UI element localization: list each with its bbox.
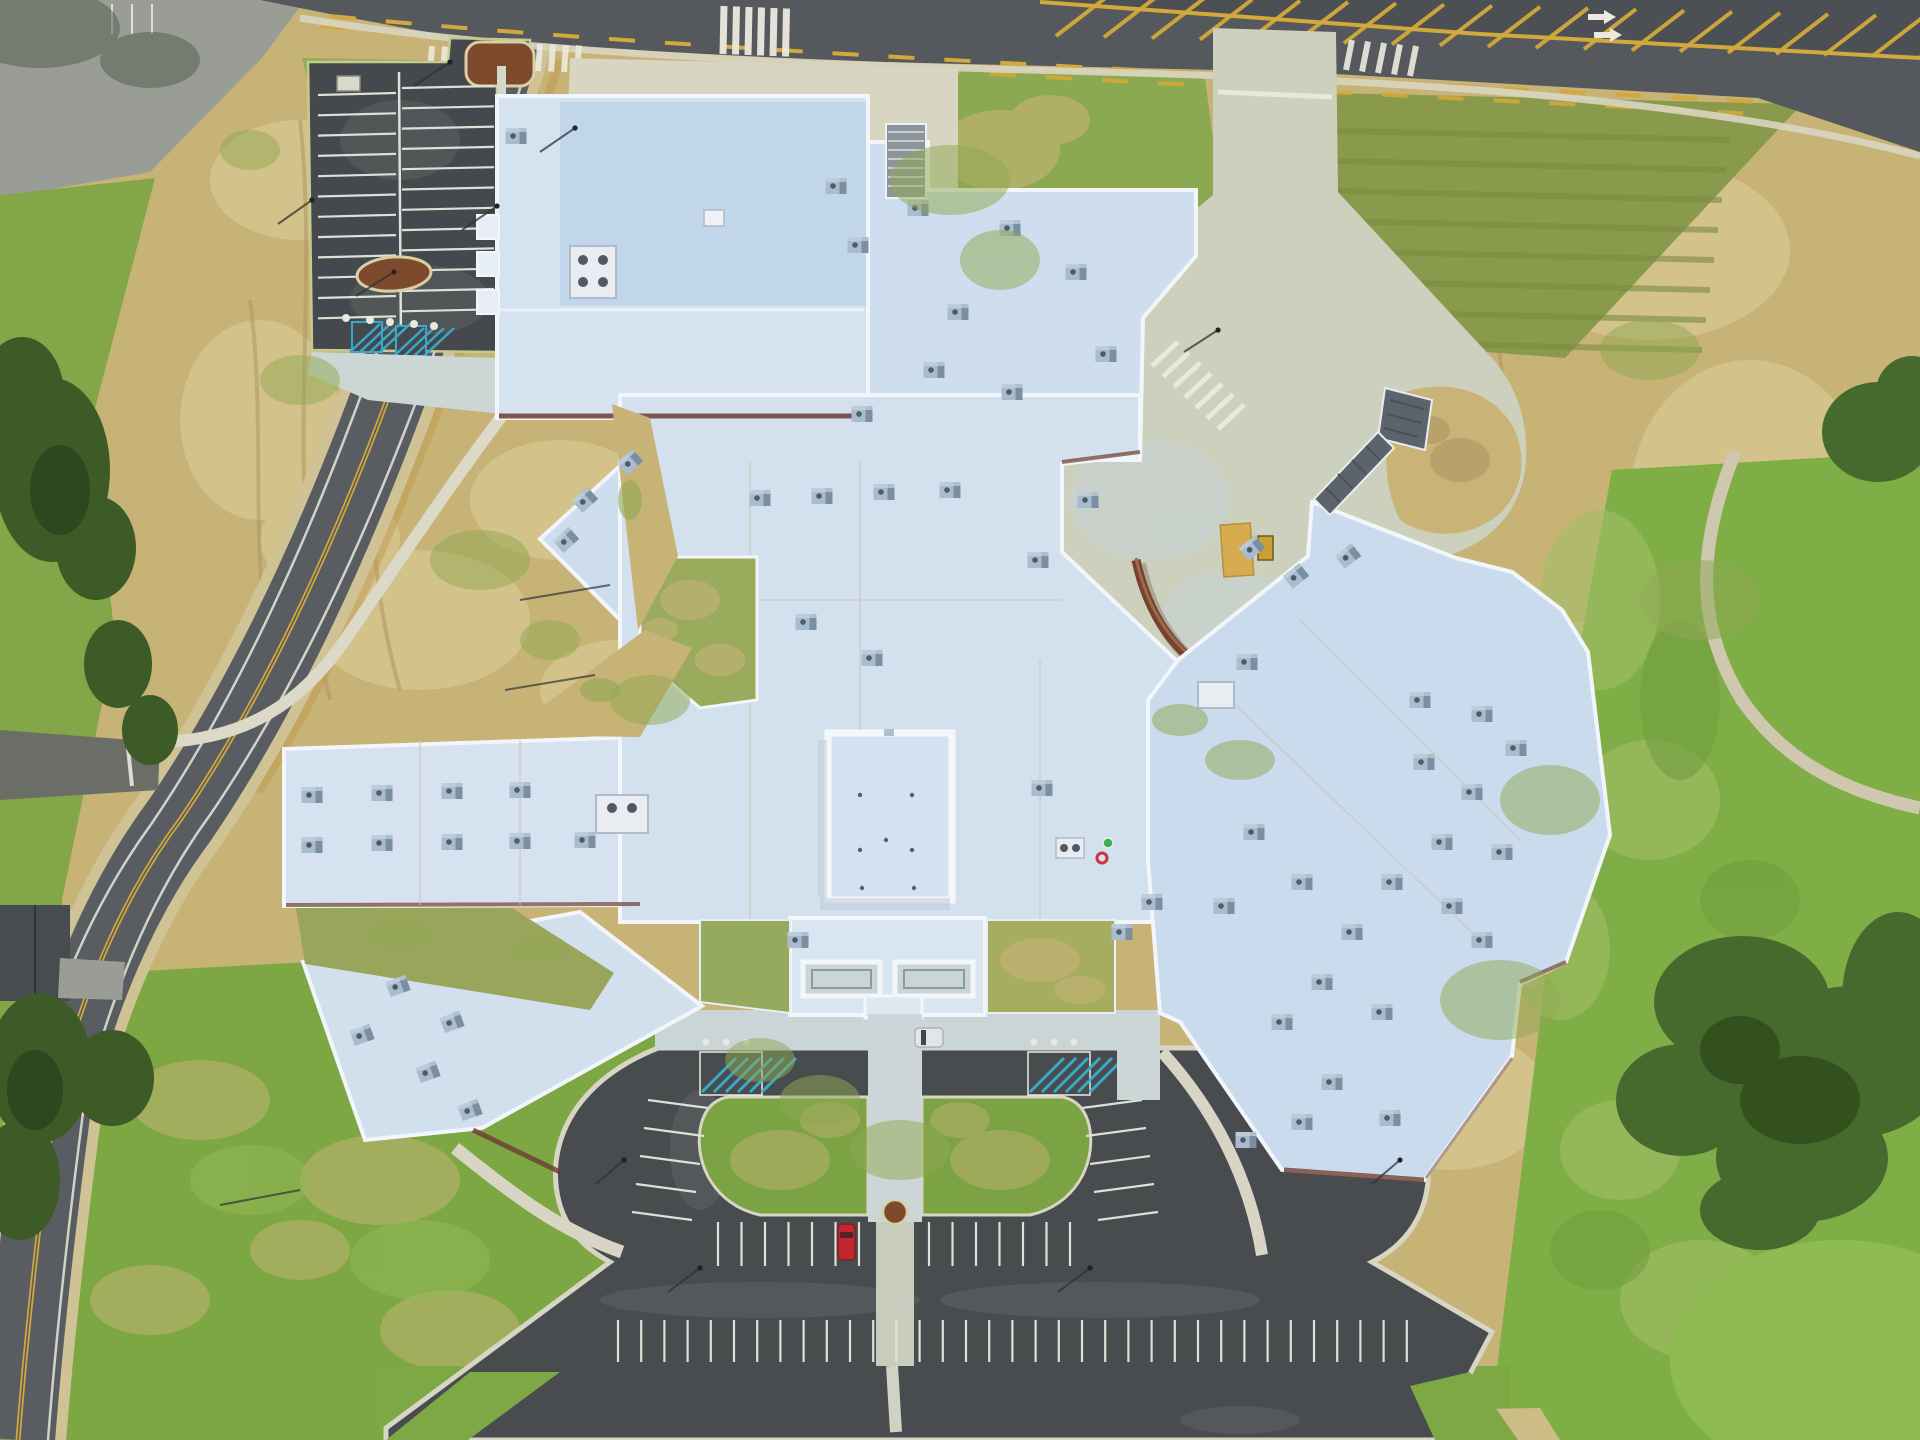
rtu-large-gym [570, 246, 616, 298]
car-white-windshield [921, 1030, 926, 1045]
aerial-photo-canvas [0, 0, 1920, 1440]
rtu-gym-cube [704, 210, 724, 226]
car-red [838, 1224, 855, 1260]
sign-board-dirt [337, 76, 360, 91]
raised-square-shadow-south [820, 898, 950, 910]
house-driveway [58, 958, 125, 1000]
car-white [915, 1028, 943, 1047]
west-bar-south-wall [286, 904, 640, 905]
roof-marker-green [1103, 838, 1113, 848]
entrance-canopy-frame-1 [803, 962, 880, 996]
rtu-west-bar [596, 795, 648, 833]
loop-east-walk-pocket [1117, 1013, 1160, 1100]
wing-west-bar [284, 737, 640, 906]
center-walkway-tail [892, 1366, 896, 1432]
raised-square-roof [828, 733, 952, 900]
raised-square-parapet-gap [884, 729, 894, 736]
center-walkway-lower [876, 1222, 914, 1366]
entrance-canopy-frame-2 [895, 962, 973, 996]
screenshot-root [0, 0, 1920, 1440]
front-pocket-west [700, 920, 790, 1013]
gym-west-tabs [477, 215, 499, 314]
entrance-walk-stub [868, 1014, 922, 1050]
raised-square-shadow-west [818, 740, 827, 898]
rtu-east-wing [1198, 682, 1234, 708]
walkway-mulch-circle [883, 1200, 907, 1224]
car-red-windshield [840, 1232, 853, 1238]
